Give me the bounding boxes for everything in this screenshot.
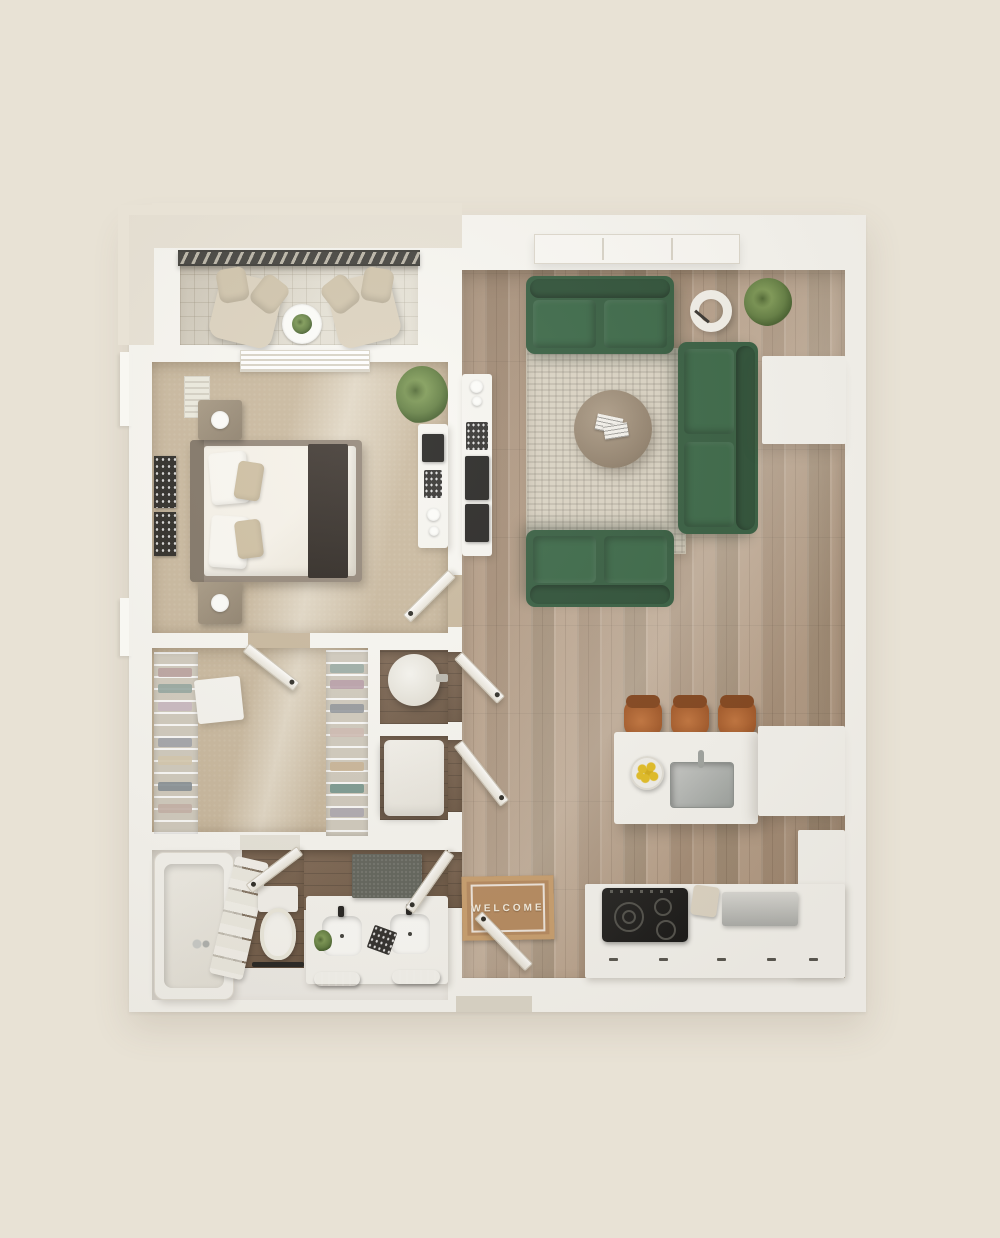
bed	[190, 440, 362, 582]
sink-faucet	[338, 906, 344, 917]
speaker	[470, 380, 483, 393]
wall-pilaster	[120, 352, 132, 426]
door-handle	[494, 691, 501, 698]
living-window	[534, 234, 740, 264]
toilet	[260, 908, 296, 960]
tv-equipment	[465, 504, 489, 542]
floor-lamp	[690, 290, 732, 332]
tub-faucet	[191, 937, 211, 951]
bath-mat	[352, 854, 422, 898]
island-faucet	[698, 750, 704, 768]
background-patch	[152, 203, 462, 248]
accent-pillow	[234, 519, 264, 560]
door-handle	[409, 901, 416, 908]
cutting-board	[690, 884, 720, 917]
bar-stool	[718, 700, 756, 736]
water-heater-pipe	[436, 674, 448, 682]
living-plant	[744, 278, 792, 326]
welcome-mat: WELCOME	[461, 875, 554, 941]
table-lamp	[211, 411, 229, 429]
tall-cabinet-fridge	[758, 726, 845, 816]
sofa-top	[526, 276, 674, 354]
cabinet-handle	[767, 958, 776, 961]
throw-blanket	[308, 444, 348, 578]
cooktop-knobs	[610, 890, 680, 893]
sofa-cushion	[684, 442, 734, 527]
desk-cup	[427, 508, 440, 521]
clothes	[158, 782, 192, 791]
clothes	[330, 704, 364, 713]
window-mullion	[671, 238, 673, 260]
cabinet-handle	[717, 958, 726, 961]
art-book	[466, 422, 488, 450]
sofa-right	[678, 342, 758, 534]
sofa-cushion	[533, 536, 596, 583]
burner	[656, 920, 676, 940]
sofa-backrest	[736, 346, 755, 530]
balcony-railing	[178, 250, 420, 266]
desk-cup	[429, 526, 439, 536]
speaker	[472, 396, 482, 406]
tv-equipment	[465, 456, 489, 500]
bedroom-plant	[396, 366, 448, 424]
lemon-bowl	[630, 756, 664, 790]
sofa-backrest	[530, 585, 670, 604]
headboard	[190, 440, 204, 582]
bar-stool	[671, 700, 709, 736]
closet-shelf-right	[326, 650, 368, 836]
sofa-cushion	[684, 349, 734, 434]
tv-console	[462, 374, 492, 556]
floor-plan-scene: WELCOME	[0, 0, 1000, 1238]
balcony-plant	[292, 314, 312, 334]
bedroom-window-grille	[240, 350, 370, 372]
table-lamp	[211, 594, 229, 612]
sofa-cushion	[533, 300, 596, 348]
sofa-cushion	[604, 536, 667, 583]
clothes	[330, 808, 364, 817]
towel	[314, 972, 360, 986]
door-handle	[250, 881, 257, 888]
closet-dresser	[194, 676, 244, 725]
island-sink	[670, 762, 734, 808]
clothes	[158, 756, 192, 765]
clothes	[330, 784, 364, 793]
closet-shelf-left	[154, 652, 198, 834]
bar-stool	[624, 700, 662, 736]
clothes	[158, 668, 192, 677]
towel	[392, 970, 440, 984]
wall-art	[154, 456, 176, 508]
clothes	[158, 702, 192, 711]
clothes	[330, 762, 364, 771]
water-heater	[388, 654, 440, 706]
doorway-bath-closet	[240, 835, 300, 850]
cooktop	[602, 888, 688, 942]
bedroom-desk	[418, 424, 448, 548]
door-handle	[407, 610, 414, 617]
washer	[384, 740, 444, 816]
door-handle	[498, 794, 505, 801]
entry-threshold	[456, 996, 532, 1012]
photo-book	[424, 470, 442, 498]
toilet-pipe	[252, 962, 304, 967]
door-handle	[480, 915, 487, 922]
burner	[622, 910, 636, 924]
magazine	[603, 422, 629, 440]
sofa-backrest	[530, 279, 670, 298]
laptop	[422, 434, 444, 462]
cabinet-handle	[659, 958, 668, 961]
storage-block	[762, 356, 846, 444]
clothes	[330, 728, 364, 737]
doorway-closet	[248, 633, 310, 648]
nightstand	[198, 400, 242, 440]
sofa-bottom	[526, 530, 674, 607]
background-patch	[118, 205, 154, 345]
cabinet-handle	[609, 958, 618, 961]
nightstand	[198, 582, 242, 624]
clothes	[158, 738, 192, 747]
clothes	[158, 804, 192, 813]
clothes	[330, 680, 364, 689]
wall-art	[154, 512, 176, 556]
stainless-tray	[722, 892, 798, 926]
window-mullion	[602, 238, 604, 260]
sofa-cushion	[604, 300, 667, 348]
cabinet-handle	[809, 958, 818, 961]
vanity-plant	[314, 930, 332, 952]
burner	[654, 898, 672, 916]
clothes	[330, 664, 364, 673]
coffee-table	[574, 390, 652, 468]
clothes	[158, 684, 192, 693]
kitchen-island	[614, 732, 758, 824]
wall-pilaster	[120, 598, 132, 656]
door-handle	[288, 679, 295, 686]
